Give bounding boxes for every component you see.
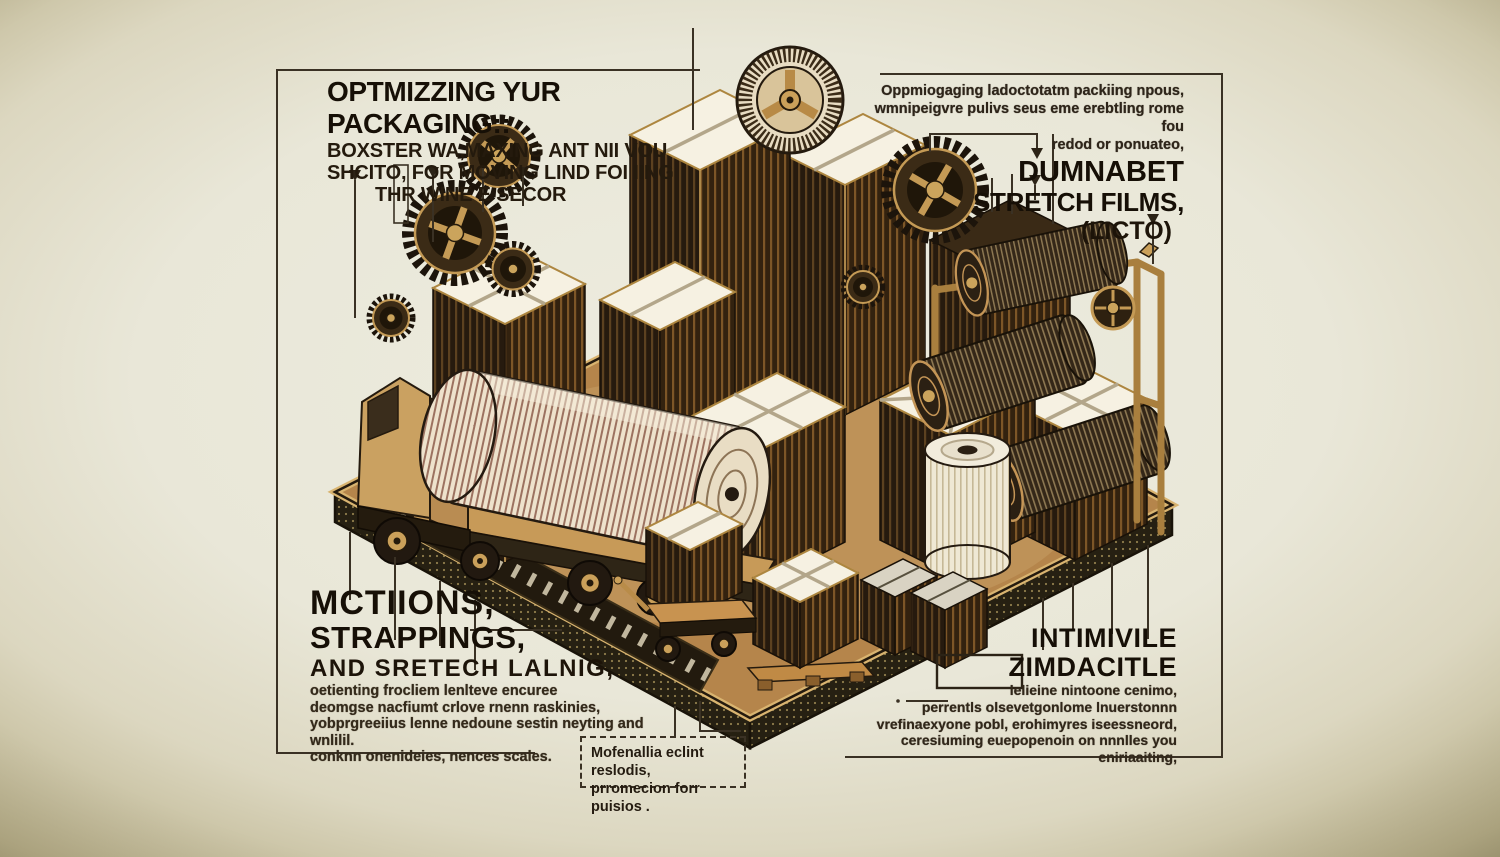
pulley-wheel xyxy=(1092,287,1134,329)
top-right-title2: STRETCH FILMS, xyxy=(852,188,1184,217)
top-right-title3: (LICTO) xyxy=(852,217,1184,246)
bottom-left-title2: STRAPPINGS, xyxy=(310,621,670,654)
gear-figure xyxy=(844,268,882,306)
bottom-left-title3: AND SRETECH LALNIG, xyxy=(310,654,670,683)
film-reel xyxy=(737,47,843,153)
top-left-line3: THR WINE E SECOR xyxy=(327,184,747,206)
top-right-intro1: Oppmiogaging ladoctotatm packiing npous, xyxy=(852,82,1184,100)
bottom-left-body1: oetienting frocliem lenlteve encuree xyxy=(310,683,670,700)
bottom-right-title2: ZIMDACITLE xyxy=(845,653,1177,682)
callout-top-left: OPTMIZZING YUR PACKAGING:: BOXSTER WA,MA… xyxy=(327,76,747,206)
truck-wheel xyxy=(374,518,420,564)
callout-top-right: Oppmiogaging ladoctotatm packiing npous,… xyxy=(852,82,1184,246)
bottom-left-body2: deomgse nacfiumt crlove rnenn raskinies, xyxy=(310,700,670,717)
bottom-right-title1: INTIMIVILE xyxy=(845,624,1177,653)
bottom-right-body4: ceresiuming euepopenoin on nnnlles you e… xyxy=(845,732,1177,766)
paper-roll xyxy=(925,433,1010,579)
top-right-title1: DUMNABET xyxy=(852,157,1184,188)
callout-bottom-right: INTIMIVILE ZIMDACITLE lelieine nintoone … xyxy=(845,624,1177,766)
bottom-right-body1: lelieine nintoone cenimo, xyxy=(845,682,1177,699)
top-right-intro2: wmnipeigvre pulivs seus eme erebtling ro… xyxy=(852,100,1184,136)
top-left-line2: SHCITO, FOR MOVING LIND FOI IING xyxy=(327,162,747,184)
center-note-line1: Mofenallia eclint reslodis, xyxy=(591,744,737,780)
bottom-left-title1: MCTIIONS, xyxy=(310,586,670,621)
gear-figure xyxy=(370,297,412,339)
center-note-box: Mofenallia eclint reslodis, prromecion f… xyxy=(580,736,746,788)
illustration-canvas xyxy=(0,0,1500,857)
bottom-right-body2: perrentls olsevetgonlome lnuerstonnn xyxy=(845,699,1177,716)
truck-wheel xyxy=(461,542,499,580)
top-left-heading: OPTMIZZING YUR PACKAGING:: xyxy=(327,76,747,140)
top-left-line1: BOXSTER WA,MAXING ANT NII VOU xyxy=(327,140,747,162)
packaging-diagram: OPTMIZZING YUR PACKAGING:: BOXSTER WA,MA… xyxy=(0,0,1500,857)
bottom-right-body3: vrefinaexyone pobl, erohimyres iseessneo… xyxy=(845,716,1177,733)
top-right-intro3: redod or ponuateo, xyxy=(852,136,1184,154)
center-note-line2: prromecion forr puisios . xyxy=(591,780,737,816)
